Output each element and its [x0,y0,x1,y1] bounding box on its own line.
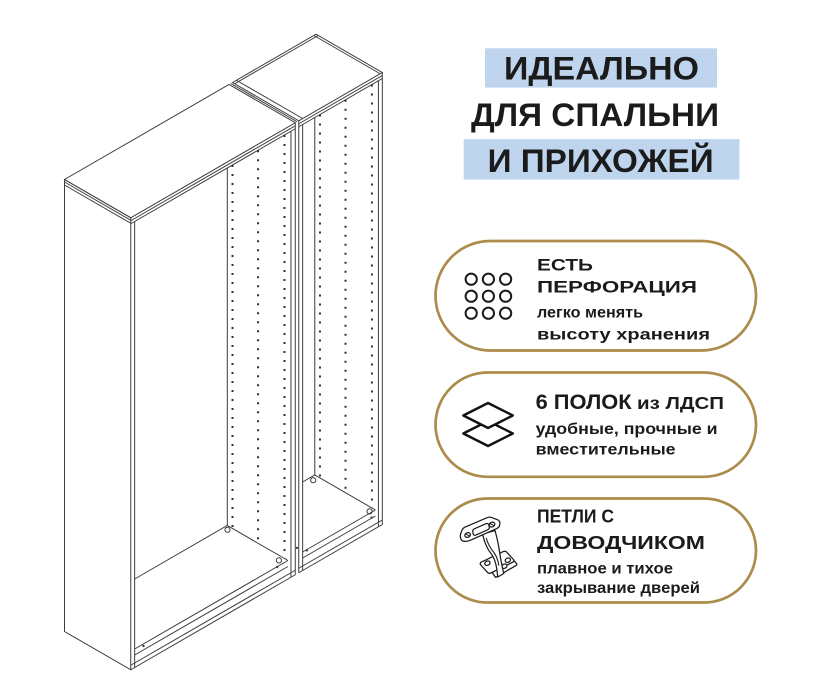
svg-text:удобные, прочные и: удобные, прочные и [536,421,718,438]
svg-text:ПЕТЛИ С: ПЕТЛИ С [537,507,614,527]
svg-text:ПЕРФОРАЦИЯ: ПЕРФОРАЦИЯ [537,278,697,297]
svg-text:6 ПОЛОК: 6 ПОЛОК [536,390,633,414]
svg-text:ДОВОДЧИКОМ: ДОВОДЧИКОМ [537,532,705,553]
svg-text:вместительные: вместительные [536,442,676,459]
svg-text:И ПРИХОЖЕЙ: И ПРИХОЖЕЙ [488,143,714,179]
svg-text:закрывание дверей: закрывание дверей [537,580,700,597]
svg-text:ДЛЯ СПАЛЬНИ: ДЛЯ СПАЛЬНИ [471,97,719,133]
svg-text:высоту хранения: высоту хранения [537,326,710,343]
svg-text:ЕСТЬ: ЕСТЬ [537,256,593,275]
svg-text:из ЛДСП: из ЛДСП [637,393,724,413]
svg-text:легко менять: легко менять [537,305,643,322]
svg-text:плавное и тихое: плавное и тихое [537,560,673,577]
svg-text:ИДЕАЛЬНО: ИДЕАЛЬНО [504,50,699,86]
